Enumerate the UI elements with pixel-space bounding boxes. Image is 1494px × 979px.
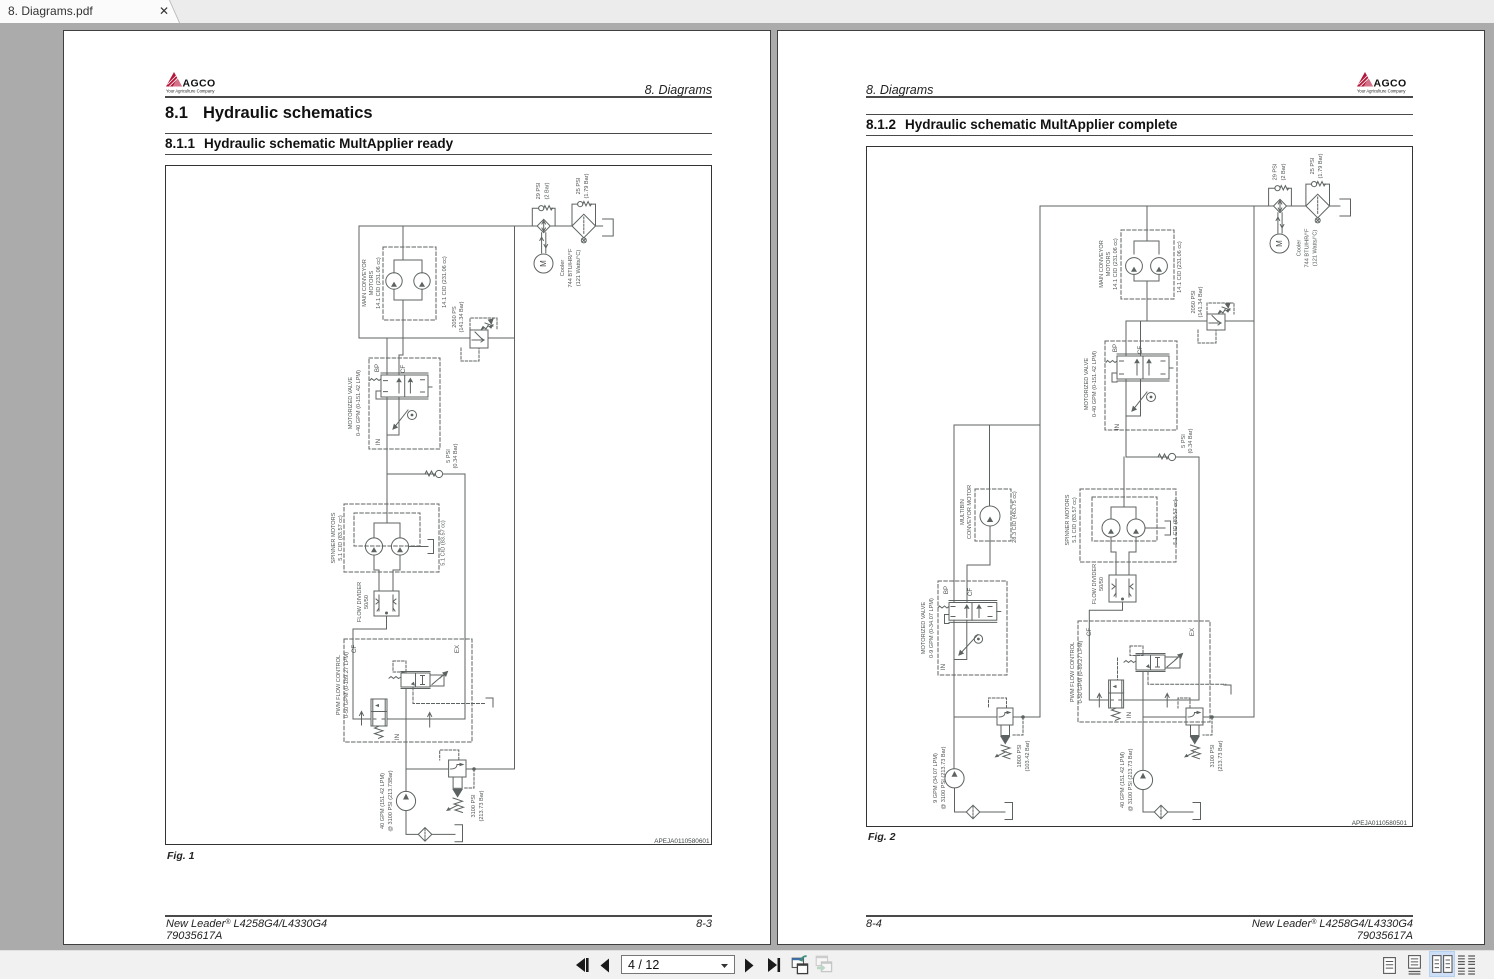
svg-text:MOTORIZED VALVE: MOTORIZED VALVE xyxy=(348,377,354,429)
svg-text:14.1 CID (231.06 cc): 14.1 CID (231.06 cc) xyxy=(1177,241,1183,293)
svg-text:(121 Watts/°C): (121 Watts/°C) xyxy=(1313,230,1319,267)
svg-text:2050 PS: 2050 PS xyxy=(452,306,458,328)
svg-text:50/50: 50/50 xyxy=(1099,577,1105,591)
svg-text:40 GPM (151.42 LPM): 40 GPM (151.42 LPM) xyxy=(380,773,386,829)
svg-text:PWM FLOW CONTROL: PWM FLOW CONTROL xyxy=(336,655,342,715)
svg-text:EX: EX xyxy=(454,645,461,653)
svg-text:14.1 CID (231.06 cc): 14.1 CID (231.06 cc) xyxy=(1113,238,1119,290)
svg-text:CONVEYOR MOTOR: CONVEYOR MOTOR xyxy=(967,485,973,539)
svg-text:5 PSI: 5 PSI xyxy=(446,449,452,463)
svg-text:FLOW DIVIDER: FLOW DIVIDER xyxy=(357,582,363,622)
svg-text:IN: IN xyxy=(394,734,401,740)
svg-text:MOTORS: MOTORS xyxy=(369,271,375,296)
svg-text:(1.79 Bar): (1.79 Bar) xyxy=(584,173,590,198)
svg-text:CF: CF xyxy=(351,645,358,653)
svg-text:(141.34 Bar): (141.34 Bar) xyxy=(1198,286,1204,317)
svg-text:5.1 CID (83.57 cc): 5.1 CID (83.57 cc) xyxy=(441,520,447,566)
svg-text:3100 PSI: 3100 PSI xyxy=(1210,744,1216,767)
svg-text:0-9 GPM (0-34.07 LPM): 0-9 GPM (0-34.07 LPM) xyxy=(929,598,935,658)
svg-text:SPINNER MOTORS: SPINNER MOTORS xyxy=(331,512,337,563)
svg-text:APEJA0110580501: APEJA0110580501 xyxy=(1352,820,1408,827)
svg-text:IN: IN xyxy=(375,439,382,445)
svg-text:28.3 CID (463.75 cc): 28.3 CID (463.75 cc) xyxy=(1012,491,1018,543)
svg-text:MOTORIZED VALVE: MOTORIZED VALVE xyxy=(1084,358,1090,410)
svg-text:29 PSI: 29 PSI xyxy=(1273,163,1279,180)
svg-text:(213.73 Bar): (213.73 Bar) xyxy=(479,790,485,821)
svg-text:(0.34 Bar): (0.34 Bar) xyxy=(1188,428,1194,453)
svg-text:0-40 GPM (0-151.42 LPM): 0-40 GPM (0-151.42 LPM) xyxy=(1092,351,1098,417)
svg-text:IN: IN xyxy=(940,664,947,670)
svg-text:MULTIBIN: MULTIBIN xyxy=(960,499,966,525)
svg-text:29 PSI: 29 PSI xyxy=(536,182,542,199)
svg-text:(121 Watts/°C): (121 Watts/°C) xyxy=(576,250,582,287)
svg-text:0-50 GPM (0-89.27 LPM): 0-50 GPM (0-89.27 LPM) xyxy=(1078,640,1084,703)
svg-text:APEJA0110580601: APEJA0110580601 xyxy=(654,838,710,845)
svg-text:Cooler: Cooler xyxy=(1297,240,1303,257)
svg-text:14.1 CID (231.06 cc): 14.1 CID (231.06 cc) xyxy=(442,256,448,308)
svg-text:IN: IN xyxy=(1114,424,1121,430)
svg-text:5.1 CID (83.57 cc): 5.1 CID (83.57 cc) xyxy=(1173,499,1179,545)
svg-text:M: M xyxy=(1275,240,1284,247)
svg-text:(2 Bar): (2 Bar) xyxy=(1281,163,1287,180)
svg-text:BP: BP xyxy=(943,586,950,594)
svg-text:PWM FLOW CONTROL: PWM FLOW CONTROL xyxy=(1070,642,1076,702)
svg-text:14.1 CID (231.06 cc): 14.1 CID (231.06 cc) xyxy=(376,257,382,309)
svg-text:(0.34 Bar): (0.34 Bar) xyxy=(453,443,459,468)
svg-text:0-50 GPM (0-189.27 LPM): 0-50 GPM (0-189.27 LPM) xyxy=(344,652,350,718)
svg-text:Cooler: Cooler xyxy=(560,260,566,277)
svg-text:(213.73 Bar): (213.73 Bar) xyxy=(1218,740,1224,771)
svg-text:Your Agriculture Company: Your Agriculture Company xyxy=(1357,89,1406,94)
svg-text:25 PSI: 25 PSI xyxy=(576,177,582,194)
svg-text:MAIN CONVEYOR: MAIN CONVEYOR xyxy=(362,259,368,307)
svg-text:50/50: 50/50 xyxy=(364,595,370,609)
svg-text:CF: CF xyxy=(967,588,974,596)
svg-text:@ 3100 PSI (213.73 Bar): @ 3100 PSI (213.73 Bar) xyxy=(941,746,947,809)
svg-text:5 PSI: 5 PSI xyxy=(1181,434,1187,448)
svg-text:744 BTU/HR/°F: 744 BTU/HR/°F xyxy=(568,248,574,287)
svg-text:BP: BP xyxy=(1112,344,1119,352)
svg-text:FLOW DIVIDER: FLOW DIVIDER xyxy=(1092,564,1098,604)
svg-text:MOTORS: MOTORS xyxy=(1106,252,1112,277)
svg-text:(141.34 Bar): (141.34 Bar) xyxy=(459,301,465,332)
svg-text:5.1 CID (83.57 cc): 5.1 CID (83.57 cc) xyxy=(1072,497,1078,543)
svg-text:5.1 CID (83.57 cc): 5.1 CID (83.57 cc) xyxy=(338,515,344,561)
svg-text:MOTORIZED VALVE: MOTORIZED VALVE xyxy=(921,602,927,654)
svg-text:CF: CF xyxy=(1137,346,1144,354)
svg-text:0-40 GPM (0-151.42 LPM): 0-40 GPM (0-151.42 LPM) xyxy=(356,370,362,436)
svg-text:(1.79 Bar): (1.79 Bar) xyxy=(1318,153,1324,178)
svg-text:Your Agriculture Company: Your Agriculture Company xyxy=(166,89,215,94)
svg-text:(103.42 Bar): (103.42 Bar) xyxy=(1025,740,1031,771)
svg-text:M: M xyxy=(539,260,548,267)
svg-text:SPINNER MOTORS: SPINNER MOTORS xyxy=(1065,494,1071,545)
svg-text:3100 PSI: 3100 PSI xyxy=(471,794,477,817)
svg-text:BP: BP xyxy=(374,364,381,372)
svg-text:40 GPM (151.42 LPM): 40 GPM (151.42 LPM) xyxy=(1120,752,1126,808)
svg-text:(2 Bar): (2 Bar) xyxy=(545,182,551,199)
svg-text:@ 3100 PSI (213.73Bar): @ 3100 PSI (213.73Bar) xyxy=(388,770,394,831)
svg-text:MAIN CONVEYOR: MAIN CONVEYOR xyxy=(1099,240,1105,288)
svg-text:IN: IN xyxy=(1126,712,1133,718)
svg-text:CF: CF xyxy=(400,365,407,373)
svg-text:9 GPM (34.07 LPM): 9 GPM (34.07 LPM) xyxy=(933,753,939,803)
svg-text:@ 3100 PSI (213.73 Bar): @ 3100 PSI (213.73 Bar) xyxy=(1128,748,1134,811)
svg-text:EX: EX xyxy=(1189,628,1196,636)
svg-text:744 BTU/HR/°F: 744 BTU/HR/°F xyxy=(1305,228,1311,267)
svg-text:2050 PSI: 2050 PSI xyxy=(1191,290,1197,313)
svg-text:25 PSI: 25 PSI xyxy=(1310,157,1316,174)
svg-text:1800 PSI: 1800 PSI xyxy=(1017,744,1023,767)
svg-text:CF: CF xyxy=(1086,628,1093,636)
